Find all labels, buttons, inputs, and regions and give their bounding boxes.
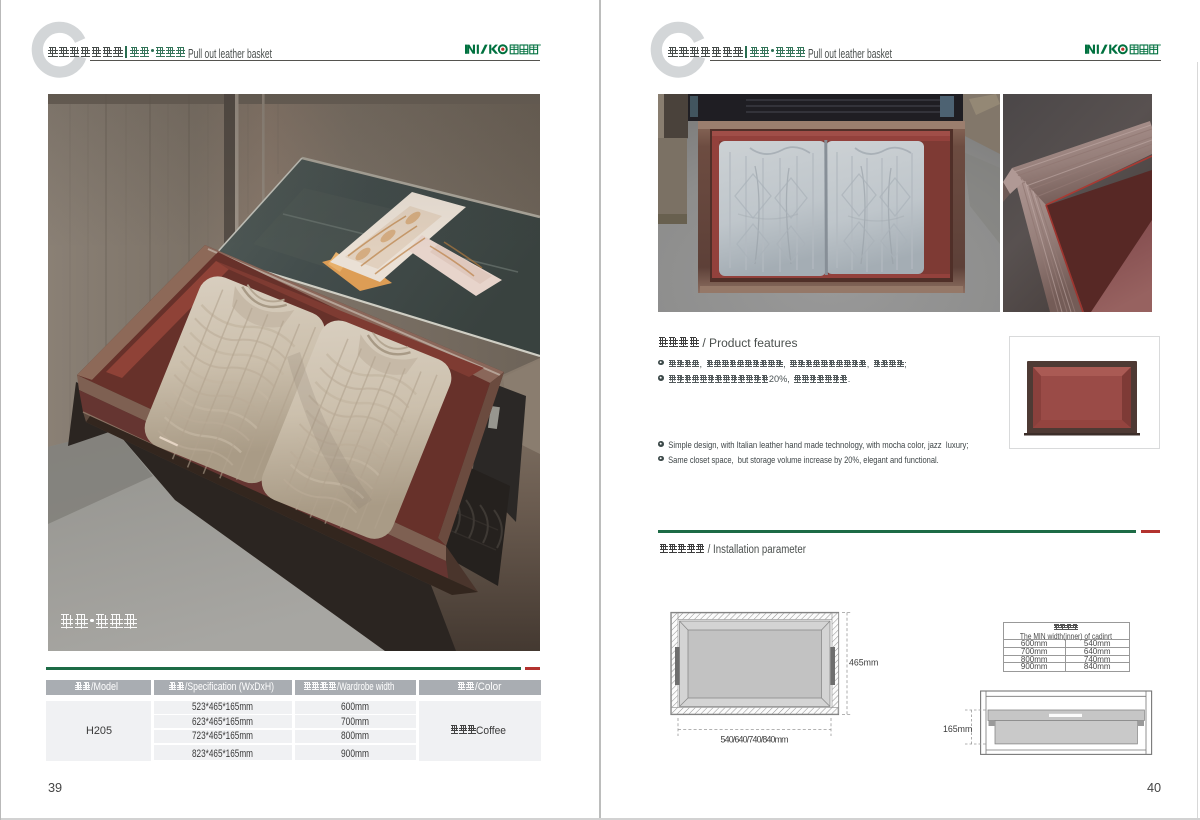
svg-text:465mm: 465mm bbox=[849, 658, 878, 668]
svg-text:165mm: 165mm bbox=[943, 724, 972, 734]
svg-text:540/640/740/840mm: 540/640/740/840mm bbox=[721, 735, 789, 745]
